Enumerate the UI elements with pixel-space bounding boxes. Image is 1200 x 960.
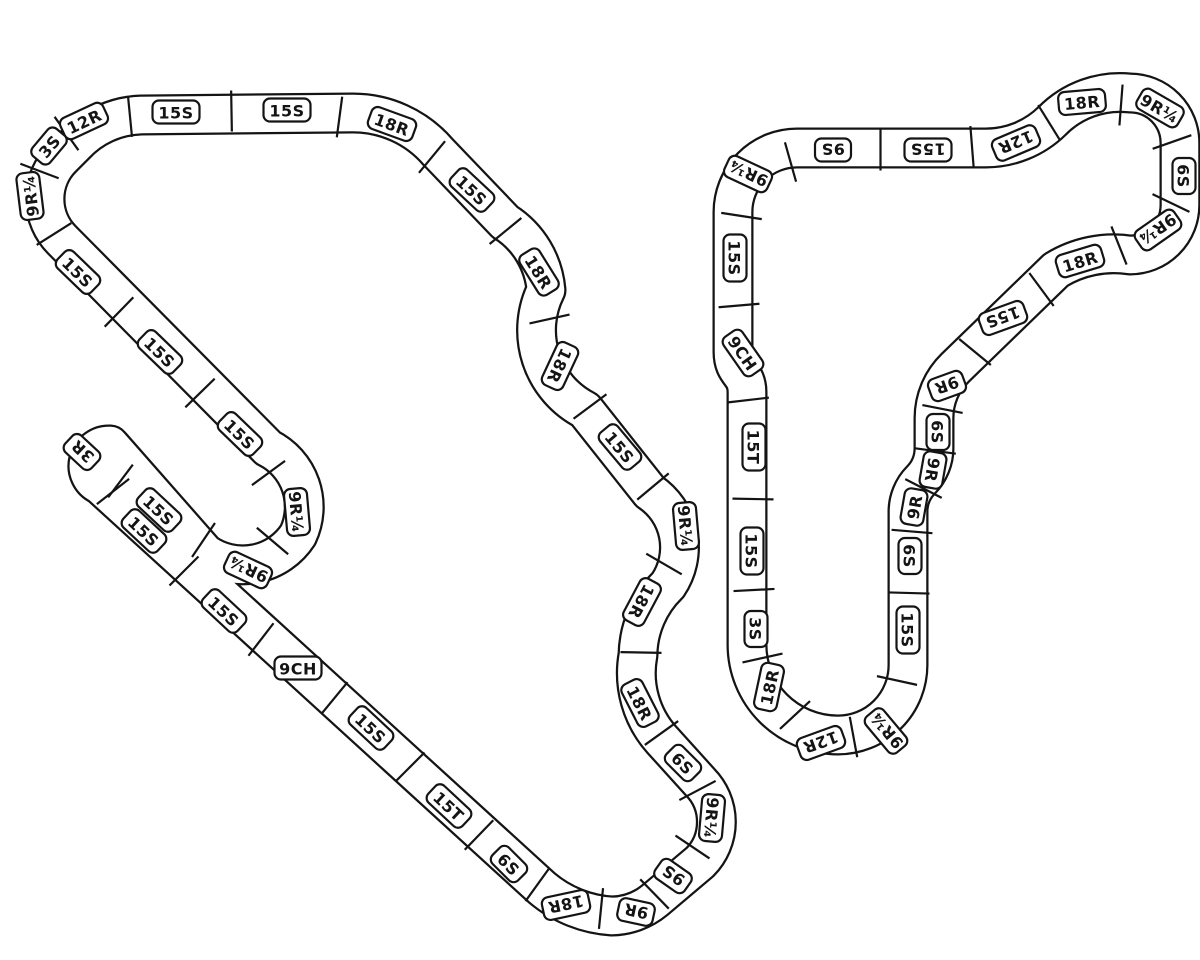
track-piece-label: 15S [897,607,920,654]
track-piece-label: 15S [264,99,311,122]
track-piece-label: 9R¼ [283,488,310,537]
piece-divider [889,592,930,593]
track-piece-label: 9R¼ [16,171,45,220]
piece-code: 15S [742,533,761,568]
piece-code: 9CH [279,660,317,679]
piece-code: 15S [910,140,945,159]
track-piece-label: 9R [919,450,948,489]
track-piece-label: 15S [724,235,747,282]
track-piece-label: 15T [743,424,766,471]
piece-code: 18R [1063,92,1101,114]
piece-code: 6S [1174,164,1193,188]
track-piece-label: 6S [899,538,922,574]
piece-divider [621,652,662,653]
piece-code: 6S [900,544,919,568]
track-piece-label: 15S [447,166,497,215]
piece-code: 15T [744,430,763,465]
track-piece-label: 18R [1058,88,1107,115]
track-piece-label: 15S [346,704,396,753]
left-circuit: 12R15S15S18R15S18R18R15S9R¼18R18R6S9R¼9S… [16,91,726,929]
piece-divider [231,91,232,132]
piece-code: 9R¼ [700,796,723,839]
piece-code: 15S [158,104,193,123]
track-ribbon [733,92,1180,735]
track-piece-label: 6S [927,414,950,450]
track-piece-label: 15T [424,782,474,831]
piece-code: 6S [928,420,947,444]
piece-code: 9R¼ [674,505,697,548]
piece-code: 15S [725,240,744,275]
track-piece-label: 9R¼ [672,502,699,551]
track-piece-label: 9R [900,487,929,526]
track-piece-label: 9CH [275,657,322,680]
track-plan-canvas: 12R15S15S18R15S18R18R15S9R¼18R18R6S9R¼9S… [0,0,1200,960]
track-piece-label: 15S [905,139,952,162]
right-circuit: 9R¼9S15S12R18R9R¼6S9R¼18R15S9R6S9R9R6S15… [719,85,1196,762]
piece-divider [733,499,774,500]
track-piece-label: 15S [741,528,764,575]
slot-track-diagram: 12R15S15S18R15S18R18R15S9R¼18R18R6S9R¼9S… [0,0,1200,960]
track-piece-label: 6S [1173,158,1196,194]
piece-code: 3S [746,617,765,641]
piece-code: 15S [269,102,304,121]
piece-code: 9S [821,140,845,159]
track-piece-label: 3S [745,611,768,647]
piece-code: 9R¼ [285,491,308,534]
piece-code: 15S [898,612,917,647]
track-piece-label: 9R¼ [698,794,725,843]
track-piece-label: 15S [153,101,200,124]
track-ribbon-casing [733,92,1180,735]
track-piece-label: 9S [815,139,851,162]
